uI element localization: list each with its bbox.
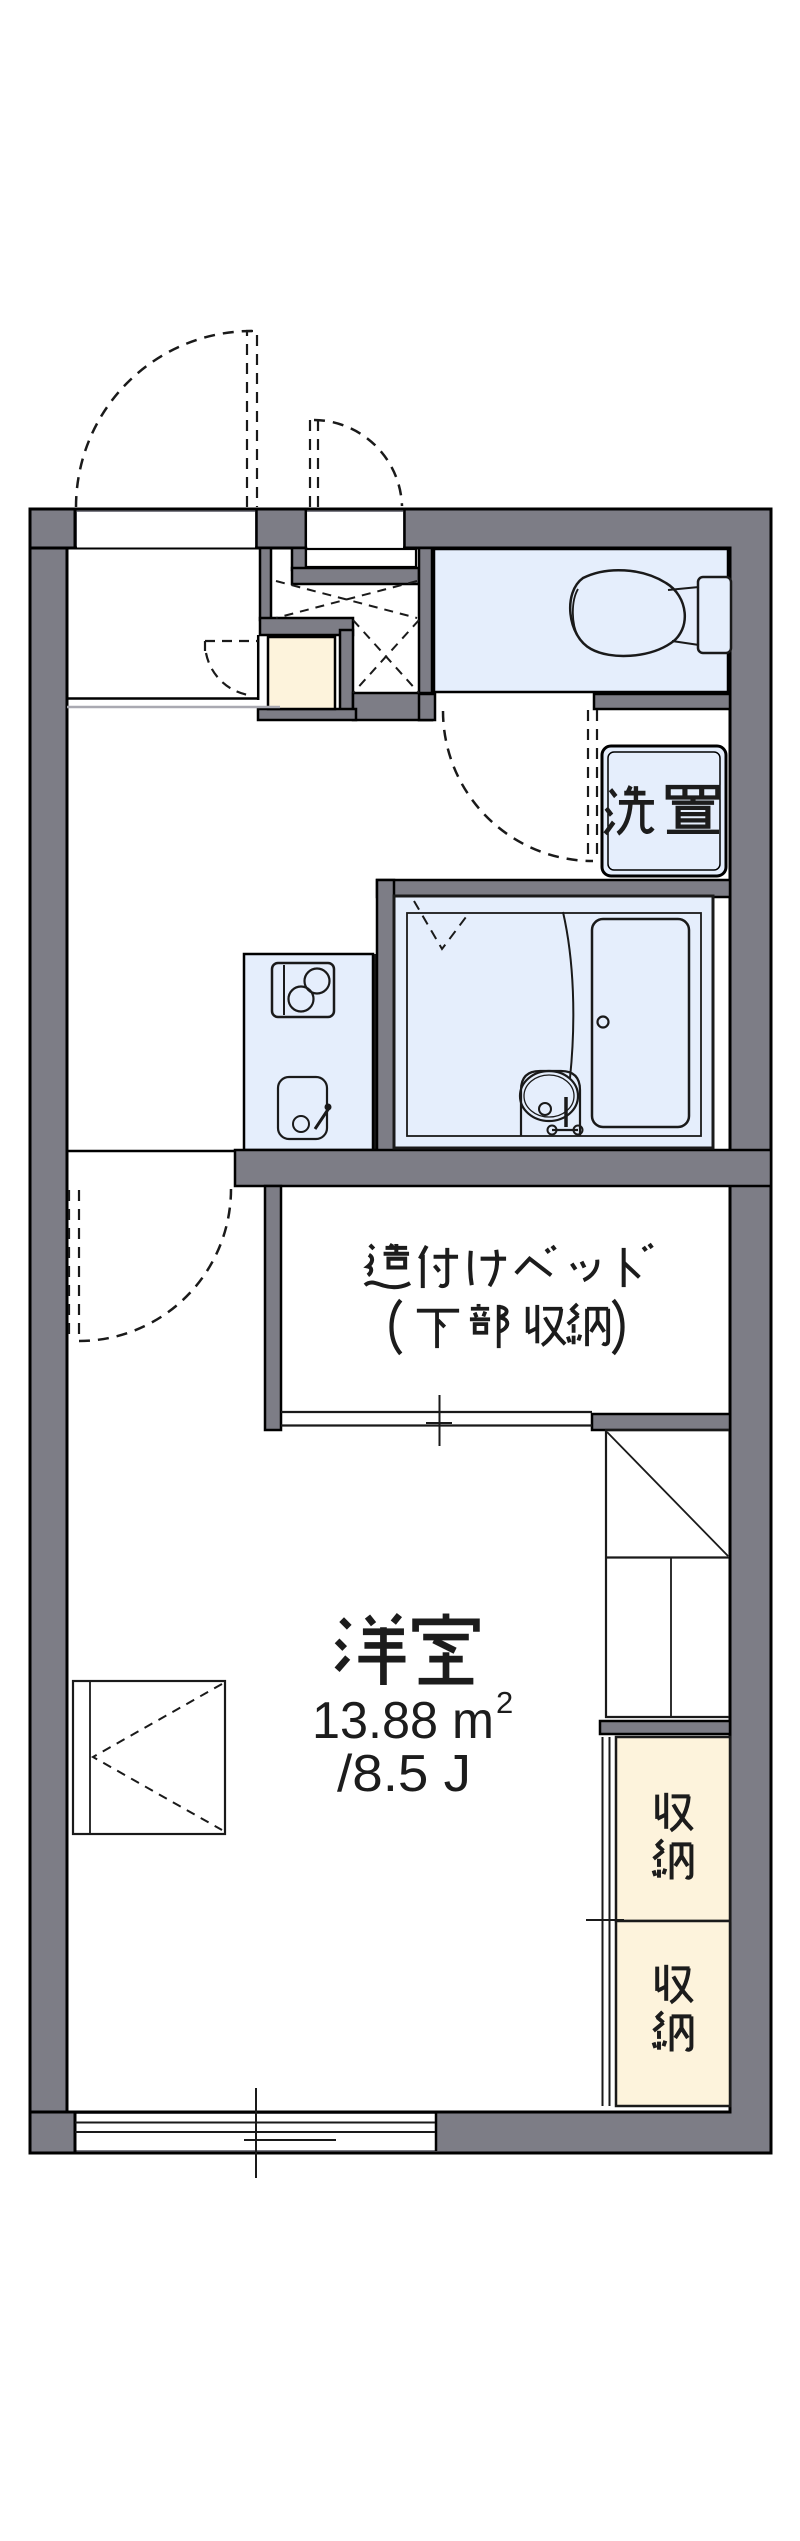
svg-text:13.88 m: 13.88 m xyxy=(312,1692,494,1750)
svg-text:2: 2 xyxy=(496,1685,513,1720)
svg-text:/8.5 J: /8.5 J xyxy=(337,1745,471,1803)
